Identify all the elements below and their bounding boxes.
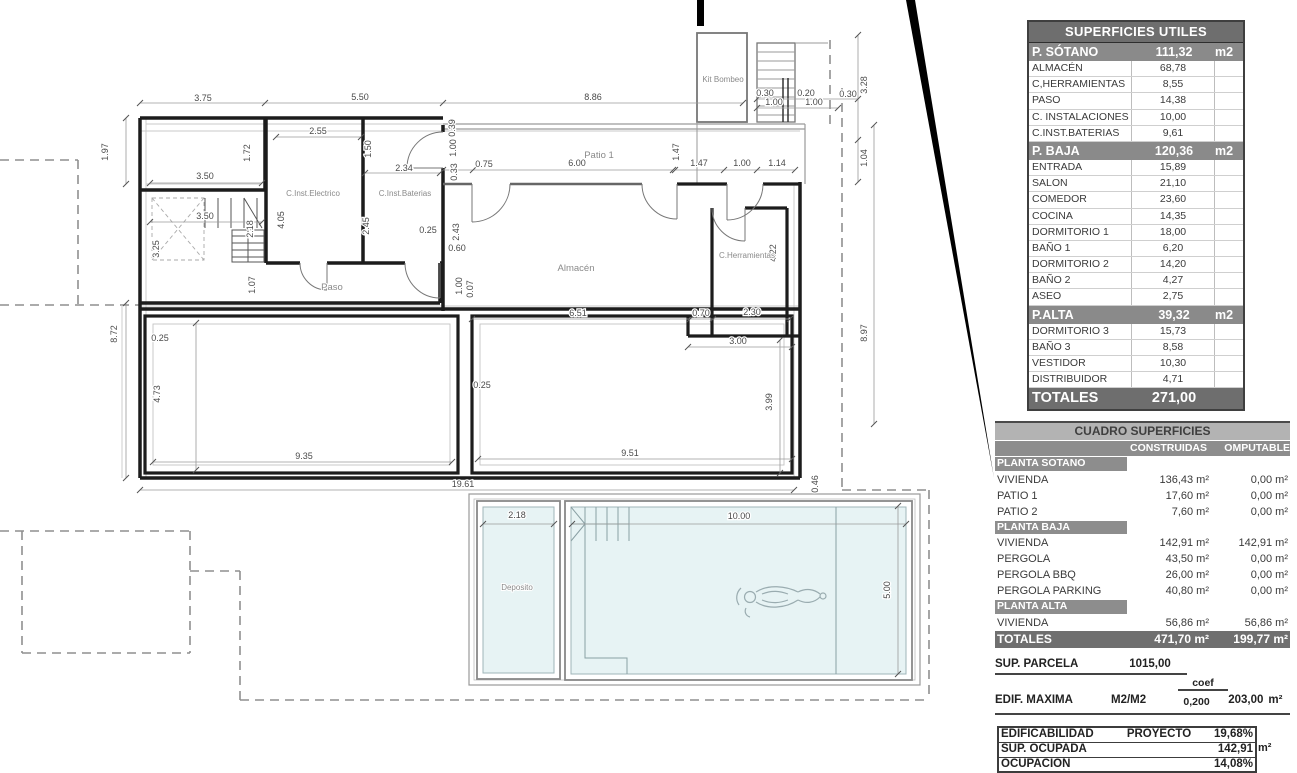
row-label: ALMACÉN <box>1029 61 1132 76</box>
dim-label: 2.34 <box>395 163 413 173</box>
cuadro-superficies-table: CUADRO SUPERFICIES CONSTRUIDASOMPUTABLE … <box>995 421 1290 648</box>
dim-label: 1.04 <box>859 149 869 167</box>
col-constr: CONSTRUIDAS <box>995 441 1207 456</box>
sup-parcela-value: 1015,00 <box>1113 658 1187 670</box>
totals-value: 271,00 <box>1133 388 1215 409</box>
edif-label: EDIF. MAXIMA <box>995 694 1111 708</box>
table-row: DORMITORIO 214,20 <box>1029 257 1243 273</box>
dim-label: 9.35 <box>295 451 313 461</box>
section-label: PLANTA ALTA <box>995 600 1127 614</box>
row-mid <box>1113 743 1205 757</box>
row-label: BAÑO 3 <box>1029 340 1132 355</box>
resumen-box-suffix: m² <box>1258 742 1271 754</box>
row-label: C. INSTALACIONES <box>1029 110 1132 125</box>
construction-lines <box>122 118 800 478</box>
dim-label: 0.75 <box>475 159 493 169</box>
row-value: 14,20 <box>1132 257 1215 272</box>
dim-label: 5.50 <box>351 92 369 102</box>
section-row: PLANTA ALTA <box>995 600 1290 615</box>
row-value: 10,30 <box>1132 356 1215 371</box>
dim-label: 0.39 <box>447 119 457 137</box>
dim-label: 8.72 <box>109 325 119 343</box>
cut-mark-bar <box>697 0 704 26</box>
row-label: COCINA <box>1029 209 1132 224</box>
dim-label: 3.28 <box>859 76 869 94</box>
table-row: ASEO2,75 <box>1029 289 1243 305</box>
edif-coef-value: 0,200 <box>1172 694 1221 708</box>
row-label: DISTRIBUIDOR <box>1029 372 1132 387</box>
dim-label: 6.00 <box>568 158 586 168</box>
table-row: BAÑO 24,27 <box>1029 273 1243 289</box>
dim-label: 1.00 <box>765 97 783 107</box>
edif-value-unit: m² <box>1263 694 1290 708</box>
dim-label: 3.50 <box>196 171 214 181</box>
row-label: VIVIENDA <box>995 535 1115 551</box>
row-constr: 17,60 m² <box>1115 488 1209 504</box>
row-label: EDIFICABILIDAD <box>999 728 1113 742</box>
table-row: PASO14,38 <box>1029 93 1243 109</box>
pool-area <box>469 494 920 685</box>
row-value: 21,10 <box>1132 176 1215 191</box>
table-row: ALMACÉN68,78 <box>1029 61 1243 77</box>
dim-label: 1.00 <box>733 158 751 168</box>
row-label: PERGOLA PARKING <box>995 583 1115 599</box>
row-value: 142,91 <box>1205 743 1255 757</box>
section-value: 120,36 <box>1133 142 1215 160</box>
leader-wedge <box>906 0 994 478</box>
dim-label: 6.51 <box>569 308 587 318</box>
table-title: SUPERFICIES UTILES <box>1029 22 1243 43</box>
table-row: PERGOLA BBQ26,00 m²0,00 m² <box>995 567 1290 583</box>
section-label: P.ALTA <box>1029 306 1133 324</box>
row-label: PERGOLA BBQ <box>995 567 1115 583</box>
table-row: VIVIENDA56,86 m²56,86 m² <box>995 615 1290 631</box>
table-row: DORMITORIO 118,00 <box>1029 225 1243 241</box>
row-value: 68,78 <box>1132 61 1215 76</box>
section-label: P. BAJA <box>1029 142 1133 160</box>
divider <box>995 713 1290 715</box>
row-mid <box>1113 758 1205 772</box>
row-label: COMEDOR <box>1029 192 1132 207</box>
row-value: 2,75 <box>1132 289 1215 304</box>
section-unit: m2 <box>1215 43 1243 61</box>
edif-unit: M2/M2 <box>1111 694 1172 708</box>
row-value: 8,55 <box>1132 77 1215 92</box>
row-value: 6,20 <box>1132 241 1215 256</box>
table-row: COMEDOR23,60 <box>1029 192 1243 208</box>
room-label-almacen: Almacén <box>558 263 595 274</box>
table-row: ENTRADA15,89 <box>1029 160 1243 176</box>
dim-label: 3.50 <box>196 211 214 221</box>
table-row: PERGOLA43,50 m²0,00 m² <box>995 551 1290 567</box>
table-row: DORMITORIO 315,73 <box>1029 324 1243 340</box>
room-label-herramientas: C.Herramientas <box>719 251 775 260</box>
row-label: VIVIENDA <box>995 615 1115 631</box>
section-value: 39,32 <box>1133 306 1215 324</box>
dim-label: 0.60 <box>448 243 466 253</box>
row-label: ENTRADA <box>1029 160 1132 175</box>
dim-label: 8.86 <box>584 92 602 102</box>
table-row: VESTIDOR10,30 <box>1029 356 1243 372</box>
dim-label: 3.00 <box>729 336 747 346</box>
row-comput: 0,00 m² <box>1209 488 1290 504</box>
row-label: PATIO 1 <box>995 488 1115 504</box>
section-unit: m2 <box>1215 142 1243 160</box>
totals-label: TOTALES <box>1029 388 1133 409</box>
dim-label: 0.25 <box>151 333 169 343</box>
dim-label: 0.25 <box>473 380 491 390</box>
dim-label: 1.14 <box>768 158 786 168</box>
row-comput: 0,00 m² <box>1209 504 1290 520</box>
row-label: SUP. OCUPADA <box>999 743 1113 757</box>
dim-label: 2.55 <box>309 126 327 136</box>
dim-label: 0.70 <box>692 308 710 318</box>
sup-parcela-row: SUP. PARCELA 1015,00 <box>995 658 1187 675</box>
dim-label: 8.97 <box>859 324 869 342</box>
row-label: C,HERRAMIENTAS <box>1029 77 1132 92</box>
row-comput: 0,00 m² <box>1209 472 1290 488</box>
dim-label: 1.00 <box>448 139 458 157</box>
coef-label: coef <box>1178 677 1228 691</box>
column-header-row: CONSTRUIDASOMPUTABLE <box>995 441 1290 456</box>
row-comput: 0,00 m² <box>1209 567 1290 583</box>
dim-label: 10.00 <box>728 511 751 521</box>
row-value: 8,58 <box>1132 340 1215 355</box>
table-row: PERGOLA PARKING40,80 m²0,00 m² <box>995 583 1290 599</box>
dim-label: 2.18 <box>508 510 526 520</box>
row-label: PASO <box>1029 93 1132 108</box>
sup-parcela-label: SUP. PARCELA <box>995 658 1113 670</box>
section-row: PLANTA SOTANO <box>995 457 1290 472</box>
dim-label: 1.00 <box>805 97 823 107</box>
edif-maxima-row: EDIF. MAXIMA M2/M2 0,200 203,00 m² <box>995 694 1290 708</box>
section-unit: m2 <box>1215 306 1243 324</box>
row-constr: 142,91 m² <box>1115 535 1209 551</box>
dim-label: 1.97 <box>100 143 110 161</box>
row-constr: 26,00 m² <box>1115 567 1209 583</box>
dim-label: 1.72 <box>242 144 252 162</box>
dim-label: 9.51 <box>621 448 639 458</box>
totals-label: TOTALES <box>995 631 1115 649</box>
row-value: 15,89 <box>1132 160 1215 175</box>
dim-label: 19.61 <box>452 479 475 489</box>
col-computable: OMPUTABLE <box>1207 441 1290 456</box>
dim-label: 0.25 <box>419 225 437 235</box>
superficies-utiles-table: SUPERFICIES UTILES P. SÓTANO111,32m2 ALM… <box>1027 20 1245 411</box>
room-label-deposito: Deposito <box>501 583 533 592</box>
dim-label: 1.07 <box>247 276 257 294</box>
room-label-kit-bombeo: Kit Bombeo <box>702 75 744 84</box>
row-value: 4,71 <box>1132 372 1215 387</box>
row-constr: 136,43 m² <box>1115 472 1209 488</box>
row-label: BAÑO 1 <box>1029 241 1132 256</box>
section-row: P. BAJA120,36m2 <box>1029 142 1243 160</box>
table-row: DISTRIBUIDOR4,71 <box>1029 372 1243 388</box>
row-label: SALON <box>1029 176 1132 191</box>
totals-constr: 471,70 m² <box>1115 631 1209 649</box>
dim-label: 5.00 <box>882 581 892 599</box>
table-row: SUP. OCUPADA142,91 <box>999 743 1255 758</box>
row-comput: 56,86 m² <box>1209 615 1290 631</box>
resumen-box: EDIFICABILIDADPROYECTO19,68% SUP. OCUPAD… <box>997 726 1257 773</box>
dim-label: 1.00 <box>454 277 464 295</box>
row-value: 9,61 <box>1132 126 1215 141</box>
edif-value: 203,00 <box>1221 694 1263 708</box>
row-label: PATIO 2 <box>995 504 1115 520</box>
row-label: VESTIDOR <box>1029 356 1132 371</box>
dim-label: 0.07 <box>465 280 475 298</box>
totals-comput: 199,77 m² <box>1209 631 1290 649</box>
row-value: 19,68% <box>1205 728 1255 742</box>
table-row: EDIFICABILIDADPROYECTO19,68% <box>999 728 1255 743</box>
room-label-paso: Paso <box>321 282 343 293</box>
section-label: PLANTA BAJA <box>995 521 1127 535</box>
table-row: BAÑO 16,20 <box>1029 241 1243 257</box>
row-label: DORMITORIO 3 <box>1029 324 1132 339</box>
row-value: 15,73 <box>1132 324 1215 339</box>
dim-label: 3.75 <box>194 93 212 103</box>
row-constr: 7,60 m² <box>1115 504 1209 520</box>
row-value: 14,35 <box>1132 209 1215 224</box>
table-row: C,HERRAMIENTAS8,55 <box>1029 77 1243 93</box>
section-label: P. SÓTANO <box>1029 43 1133 61</box>
table-row: VIVIENDA136,43 m²0,00 m² <box>995 472 1290 488</box>
dim-label: 2.43 <box>451 223 461 241</box>
row-label: DORMITORIO 1 <box>1029 225 1132 240</box>
row-value: 14,38 <box>1132 93 1215 108</box>
section-row: P. SÓTANO111,32m2 <box>1029 43 1243 61</box>
room-label-patio1: Patio 1 <box>584 150 614 161</box>
row-constr: 40,80 m² <box>1115 583 1209 599</box>
dim-label: 0.30 <box>839 89 857 99</box>
table-row: PATIO 27,60 m²0,00 m² <box>995 504 1290 520</box>
table-row: BAÑO 38,58 <box>1029 340 1243 356</box>
dim-label: 0.46 <box>810 475 820 493</box>
row-label: PERGOLA <box>995 551 1115 567</box>
table-row: VIVIENDA142,91 m²142,91 m² <box>995 535 1290 551</box>
dim-label: 2.45 <box>361 217 371 235</box>
section-cut-marks <box>697 0 994 478</box>
dim-label: 1.47 <box>671 143 681 161</box>
dim-label: 4.73 <box>152 385 162 403</box>
section-label: PLANTA SOTANO <box>995 457 1127 471</box>
table-row: SALON21,10 <box>1029 176 1243 192</box>
totals-row: TOTALES471,70 m²199,77 m² <box>995 631 1290 649</box>
room-label-inst-baterias: C.Inst.Baterias <box>379 189 431 198</box>
table-title: CUADRO SUPERFICIES <box>995 421 1290 440</box>
row-comput: 0,00 m² <box>1209 583 1290 599</box>
row-label: VIVIENDA <box>995 472 1115 488</box>
row-label: BAÑO 2 <box>1029 273 1132 288</box>
table-row: C. INSTALACIONES10,00 <box>1029 110 1243 126</box>
dim-label: 0.33 <box>449 163 459 181</box>
room-label-inst-electrico: C.Inst.Electrico <box>286 189 340 198</box>
dim-label: 3.25 <box>151 240 161 258</box>
row-label: OCUPACION <box>999 758 1113 772</box>
table-row: C.INST.BATERIAS9,61 <box>1029 126 1243 142</box>
row-value: 4,27 <box>1132 273 1215 288</box>
table-row: COCINA14,35 <box>1029 209 1243 225</box>
totals-row: TOTALES271,00 <box>1029 388 1243 409</box>
row-mid: PROYECTO <box>1113 728 1205 742</box>
row-label: DORMITORIO 2 <box>1029 257 1132 272</box>
dim-label: 4.05 <box>276 211 286 229</box>
row-constr: 43,50 m² <box>1115 551 1209 567</box>
row-label: C.INST.BATERIAS <box>1029 126 1132 141</box>
row-comput: 142,91 m² <box>1209 535 1290 551</box>
row-value: 18,00 <box>1132 225 1215 240</box>
row-value: 10,00 <box>1132 110 1215 125</box>
row-value: 14,08% <box>1205 758 1255 772</box>
dim-label: 2.18 <box>245 220 255 238</box>
section-row: P.ALTA39,32m2 <box>1029 306 1243 324</box>
dim-label: 1.50 <box>363 140 373 158</box>
row-value: 23,60 <box>1132 192 1215 207</box>
architectural-plan-sheet: 3.75 5.50 8.86 3.50 2.55 2.34 0.25 3.50 … <box>0 0 1297 773</box>
row-comput: 0,00 m² <box>1209 551 1290 567</box>
section-row: PLANTA BAJA <box>995 521 1290 536</box>
dim-label: 3.99 <box>764 393 774 411</box>
row-label: ASEO <box>1029 289 1132 304</box>
table-row: OCUPACION14,08% <box>999 758 1255 772</box>
table-row: PATIO 117,60 m²0,00 m² <box>995 488 1290 504</box>
dim-label: 1.47 <box>690 158 708 168</box>
row-constr: 56,86 m² <box>1115 615 1209 631</box>
dim-label: 2.30 <box>743 307 761 317</box>
section-value: 111,32 <box>1133 43 1215 61</box>
